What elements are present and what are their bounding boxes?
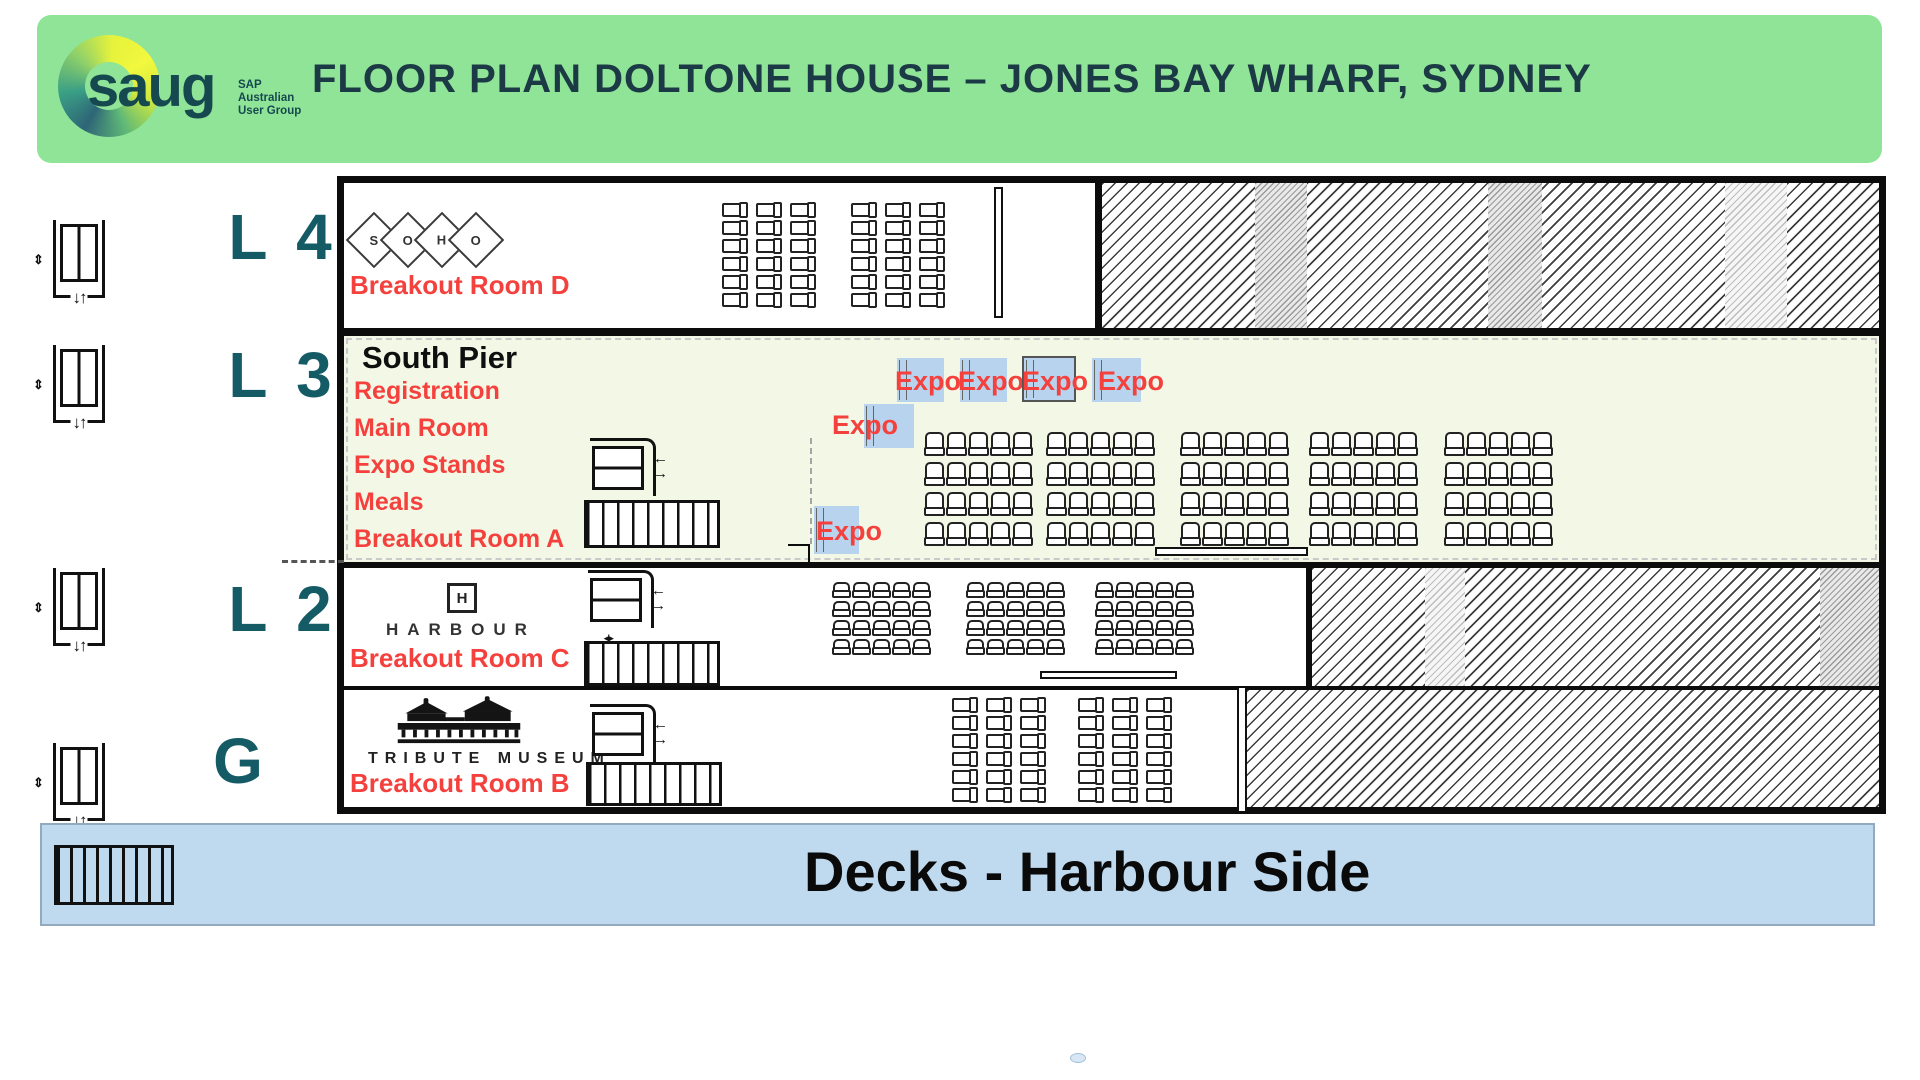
chair-icon: [790, 239, 816, 253]
chair-icon: [967, 639, 984, 655]
chair-icon: [1027, 601, 1044, 617]
chair-icon: [1047, 582, 1064, 598]
chair-icon: [1203, 462, 1222, 486]
chair-icon: [1078, 734, 1104, 748]
chair-icon: [722, 239, 748, 253]
chair-icon: [1156, 601, 1173, 617]
chair-icon: [1146, 752, 1172, 766]
lift-updown-arrows-icon: ↓↑: [71, 413, 88, 433]
chair-icon: [1176, 601, 1193, 617]
chair-icon: [987, 620, 1004, 636]
decks-label: Decks - Harbour Side: [804, 839, 1370, 904]
tribute-museum-logo-text: TRIBUTE MUSEUM: [368, 750, 611, 768]
l3-room-dashed-wall: [810, 438, 812, 544]
chair-icon: [722, 275, 748, 289]
l2-hatch-light-strip: [1425, 568, 1465, 686]
chair-icon: [756, 275, 782, 289]
chair-icon: [853, 582, 870, 598]
lift-side-arrow-icon: ⇕: [33, 377, 44, 393]
l3-seating-block: [1445, 432, 1552, 546]
chair-icon: [885, 239, 911, 253]
chair-icon: [756, 203, 782, 217]
chair-icon: [1136, 620, 1153, 636]
l3-external-dashed-line: [282, 560, 344, 563]
chair-icon: [987, 601, 1004, 617]
chair-icon: [790, 275, 816, 289]
stairs-icon-l2: [584, 641, 720, 686]
l3-seating-block: [1181, 432, 1288, 546]
expo-label: Expo: [816, 516, 882, 547]
level-label-l4: L 4: [228, 200, 338, 274]
lift-doors-icon: [592, 712, 644, 756]
expo-label: Expo: [1098, 366, 1164, 397]
chair-icon: [952, 752, 978, 766]
level-label-l3: L 3: [228, 338, 338, 412]
chair-icon: [1467, 522, 1486, 546]
arrow-right-icon: →: [653, 467, 668, 481]
chair-icon: [1146, 698, 1172, 712]
chair-icon: [919, 275, 945, 289]
chair-icon: [1445, 522, 1464, 546]
chair-icon: [885, 221, 911, 235]
expo-stand: Expo: [960, 358, 1007, 402]
chair-icon: [1176, 639, 1193, 655]
chair-icon: [1467, 462, 1486, 486]
lift-updown-arrows-icon: ↓↑: [71, 288, 88, 308]
chair-icon: [1354, 492, 1373, 516]
lift-side-arrow-icon: ⇕: [33, 600, 44, 616]
chair-icon: [1112, 752, 1138, 766]
chair-icon: [1156, 582, 1173, 598]
soho-logo: S O H O: [360, 220, 496, 260]
chair-icon: [967, 620, 984, 636]
chair-icon: [1007, 582, 1024, 598]
chair-icon: [913, 582, 930, 598]
chair-icon: [1445, 462, 1464, 486]
chair-icon: [1096, 582, 1113, 598]
chair-icon: [1113, 462, 1132, 486]
lift-doors-icon: [590, 578, 642, 622]
chair-icon: [1146, 716, 1172, 730]
breakout-room-c-label: Breakout Room C: [350, 643, 570, 674]
chair-icon: [790, 203, 816, 217]
chair-icon: [1013, 432, 1032, 456]
stairs-icon-l3: [584, 500, 720, 548]
function-expo-stands: Expo Stands: [354, 452, 564, 479]
chair-icon: [893, 601, 910, 617]
function-registration: Registration: [354, 378, 564, 405]
chair-icon: [1376, 432, 1395, 456]
stairs-icon-g: [586, 762, 722, 806]
expo-stand: Expo: [814, 506, 859, 554]
chair-icon: [1376, 462, 1395, 486]
chair-icon: [1047, 620, 1064, 636]
chair-icon: [722, 257, 748, 271]
chair-icon: [1078, 698, 1104, 712]
chair-icon: [952, 698, 978, 712]
g-seating-block: [952, 698, 1050, 802]
function-meals: Meals: [354, 489, 564, 516]
chair-icon: [756, 221, 782, 235]
chair-icon: [1376, 492, 1395, 516]
saug-logo-text: saug: [87, 53, 214, 120]
chair-icon: [893, 620, 910, 636]
g-seating-block: [1078, 698, 1176, 802]
lift-doors-icon: [60, 747, 98, 805]
l4-screen: [994, 187, 1003, 318]
chair-icon: [1445, 492, 1464, 516]
chair-icon: [1467, 432, 1486, 456]
chair-icon: [1096, 620, 1113, 636]
chair-icon: [969, 432, 988, 456]
saug-sub-line3: User Group: [238, 105, 301, 118]
elevator-icon-g-plan: ← → ◂|▸: [588, 706, 660, 768]
chair-icon: [1078, 788, 1104, 802]
chair-icon: [756, 257, 782, 271]
chair-icon: [967, 601, 984, 617]
chair-icon: [1269, 432, 1288, 456]
chair-icon: [1078, 716, 1104, 730]
chair-icon: [1047, 492, 1066, 516]
soho-diamond-icon: O: [448, 212, 505, 269]
chair-icon: [1020, 752, 1046, 766]
chair-icon: [1332, 432, 1351, 456]
chair-icon: [986, 716, 1012, 730]
chair-icon: [1116, 620, 1133, 636]
expo-stand: Expo: [1022, 356, 1076, 402]
chair-icon: [873, 582, 890, 598]
chair-icon: [1181, 462, 1200, 486]
elevator-icon-l2-plan: ← → ◂|▸: [586, 572, 658, 634]
chair-icon: [919, 239, 945, 253]
chair-icon: [1112, 788, 1138, 802]
chair-icon: [1069, 432, 1088, 456]
chair-icon: [1112, 734, 1138, 748]
l4-room-wall: [1095, 183, 1102, 328]
chair-icon: [1091, 432, 1110, 456]
chair-icon: [986, 698, 1012, 712]
l2-seating-block: [1096, 582, 1193, 655]
chair-icon: [790, 293, 816, 307]
chair-icon: [722, 203, 748, 217]
decks-band: Decks - Harbour Side: [40, 823, 1875, 926]
chair-icon: [1467, 492, 1486, 516]
chair-icon: [1511, 432, 1530, 456]
expo-label: Expo: [832, 410, 898, 441]
chair-icon: [1112, 770, 1138, 784]
chair-icon: [1225, 432, 1244, 456]
chair-icon: [1269, 492, 1288, 516]
lift-doors-icon: [60, 349, 98, 407]
elevator-icon-l3-plan: ← → ◂|▸: [588, 440, 660, 502]
chair-icon: [947, 462, 966, 486]
chair-icon: [833, 620, 850, 636]
chair-icon: [851, 221, 877, 235]
arrow-left-icon: ←: [651, 584, 666, 598]
chair-icon: [1113, 522, 1132, 546]
chair-icon: [1047, 432, 1066, 456]
chair-icon: [913, 639, 930, 655]
chair-icon: [722, 221, 748, 235]
chair-icon: [1020, 788, 1046, 802]
chair-icon: [1354, 432, 1373, 456]
arrow-left-icon: ←: [653, 452, 668, 466]
chair-icon: [1533, 432, 1552, 456]
chair-icon: [969, 522, 988, 546]
chair-icon: [1135, 432, 1154, 456]
chair-icon: [885, 203, 911, 217]
breakout-room-b-label: Breakout Room B: [350, 768, 570, 799]
chair-icon: [893, 639, 910, 655]
chair-icon: [986, 752, 1012, 766]
chair-icon: [1047, 522, 1066, 546]
chair-icon: [1007, 620, 1024, 636]
chair-icon: [1135, 492, 1154, 516]
l4-seating-block: [851, 203, 949, 307]
decks-stairs-icon: [54, 845, 174, 905]
chair-icon: [1511, 492, 1530, 516]
chair-icon: [1078, 770, 1104, 784]
chair-icon: [851, 239, 877, 253]
elevator-icon-l4: ⇕ ↓↑: [45, 220, 113, 308]
chair-icon: [1013, 462, 1032, 486]
chair-icon: [1310, 492, 1329, 516]
chair-icon: [952, 716, 978, 730]
chair-icon: [1533, 522, 1552, 546]
chair-icon: [1398, 432, 1417, 456]
chair-icon: [1047, 639, 1064, 655]
chair-icon: [1181, 432, 1200, 456]
chair-icon: [919, 203, 945, 217]
chair-icon: [893, 582, 910, 598]
soho-letter: O: [403, 233, 413, 248]
l3-seating-block: [1310, 432, 1417, 546]
l3-stage: [1155, 547, 1308, 556]
chair-icon: [986, 788, 1012, 802]
chair-icon: [967, 582, 984, 598]
chair-icon: [1113, 492, 1132, 516]
chair-icon: [1310, 432, 1329, 456]
lift-doors-icon: [60, 224, 98, 282]
harbour-logo-text: HARBOUR: [386, 620, 536, 640]
lift-updown-arrows-icon: ↓↑: [71, 636, 88, 656]
chair-icon: [1533, 492, 1552, 516]
chair-icon: [833, 601, 850, 617]
chair-icon: [986, 734, 1012, 748]
chair-icon: [790, 257, 816, 271]
chair-icon: [1181, 522, 1200, 546]
chair-icon: [1091, 522, 1110, 546]
chair-icon: [925, 462, 944, 486]
chair-icon: [913, 601, 930, 617]
chair-icon: [947, 432, 966, 456]
arrow-right-icon: →: [653, 733, 668, 747]
chair-icon: [1096, 601, 1113, 617]
breakout-room-d-label: Breakout Room D: [350, 270, 570, 301]
chair-icon: [873, 639, 890, 655]
chair-icon: [873, 620, 890, 636]
g-wall-channel: [1237, 688, 1247, 811]
l3-wall-corner: [788, 544, 810, 546]
elevator-icon-l2: ⇕ ↓↑: [45, 568, 113, 656]
l4-hatch-gray-strip: [1255, 183, 1307, 328]
chair-icon: [1354, 522, 1373, 546]
page-title: FLOOR PLAN DOLTONE HOUSE – JONES BAY WHA…: [312, 57, 1592, 102]
lift-doors-icon: [592, 446, 644, 490]
expo-stand: Expo: [1092, 358, 1141, 402]
l3-wall-corner: [808, 544, 810, 562]
chair-icon: [919, 257, 945, 271]
chair-icon: [1156, 639, 1173, 655]
soho-letter: S: [370, 232, 379, 247]
chair-icon: [885, 257, 911, 271]
chair-icon: [1203, 522, 1222, 546]
elevator-icon-l3: ⇕ ↓↑: [45, 345, 113, 433]
saug-logo-subtext: SAP Australian User Group: [238, 79, 301, 118]
chair-icon: [947, 522, 966, 546]
chair-icon: [1489, 522, 1508, 546]
function-breakout-room-a: Breakout Room A: [354, 526, 564, 553]
chair-icon: [1533, 462, 1552, 486]
chair-icon: [885, 293, 911, 307]
lift-doors-icon: [60, 572, 98, 630]
chair-icon: [853, 620, 870, 636]
chair-icon: [851, 257, 877, 271]
chair-icon: [1489, 462, 1508, 486]
chair-icon: [1116, 639, 1133, 655]
chair-icon: [1116, 582, 1133, 598]
chair-icon: [952, 734, 978, 748]
chair-icon: [1225, 492, 1244, 516]
chair-icon: [952, 788, 978, 802]
soho-letter: H: [437, 232, 446, 247]
chair-icon: [1176, 620, 1193, 636]
chair-icon: [1069, 462, 1088, 486]
chair-icon: [1376, 522, 1395, 546]
header-banner: saug SAP Australian User Group FLOOR PLA…: [37, 15, 1882, 163]
expo-label: Expo: [895, 366, 961, 397]
chair-icon: [1269, 522, 1288, 546]
chair-icon: [1112, 716, 1138, 730]
harbour-logo-icon: H: [447, 583, 477, 613]
l4-hatch-light-strip: [1725, 183, 1787, 328]
chair-icon: [1310, 462, 1329, 486]
chair-icon: [756, 239, 782, 253]
arrow-right-icon: →: [651, 599, 666, 613]
chair-icon: [1136, 639, 1153, 655]
chair-icon: [833, 582, 850, 598]
chair-icon: [1091, 462, 1110, 486]
chair-icon: [1047, 462, 1066, 486]
chair-icon: [1146, 770, 1172, 784]
chair-icon: [925, 522, 944, 546]
chair-icon: [1091, 492, 1110, 516]
chair-icon: [1013, 492, 1032, 516]
chair-icon: [851, 275, 877, 289]
l4-seating-block: [722, 203, 820, 307]
chair-icon: [1247, 462, 1266, 486]
saug-sub-line1: SAP: [238, 79, 301, 92]
chair-icon: [1225, 462, 1244, 486]
chair-icon: [1310, 522, 1329, 546]
chair-icon: [925, 492, 944, 516]
chair-icon: [873, 601, 890, 617]
chair-icon: [885, 275, 911, 289]
chair-icon: [925, 432, 944, 456]
soho-letter: O: [471, 233, 481, 248]
chair-icon: [1069, 522, 1088, 546]
chair-icon: [853, 639, 870, 655]
chair-icon: [1007, 601, 1024, 617]
l2-seating-block: [967, 582, 1064, 655]
chair-icon: [991, 432, 1010, 456]
saug-sub-line2: Australian: [238, 92, 301, 105]
function-main-room: Main Room: [354, 415, 564, 442]
chair-icon: [952, 770, 978, 784]
chair-icon: [1156, 620, 1173, 636]
chair-icon: [1181, 492, 1200, 516]
level-label-l2: L 2: [228, 572, 338, 646]
chair-icon: [1027, 639, 1044, 655]
chair-icon: [1225, 522, 1244, 546]
chair-icon: [1135, 462, 1154, 486]
chair-icon: [969, 462, 988, 486]
chair-icon: [991, 492, 1010, 516]
chair-icon: [851, 293, 877, 307]
chair-icon: [1269, 462, 1288, 486]
chair-icon: [1027, 620, 1044, 636]
chair-icon: [1398, 492, 1417, 516]
lift-side-arrow-icon: ⇕: [33, 775, 44, 791]
chair-icon: [1176, 582, 1193, 598]
chair-icon: [790, 221, 816, 235]
page-artifact-dot: [1070, 1053, 1086, 1063]
l2-seating-block: [833, 582, 930, 655]
divider-l4-l3: [344, 328, 1879, 336]
level-label-g: G: [186, 724, 296, 798]
l2-stage: [1040, 671, 1177, 679]
chair-icon: [1007, 639, 1024, 655]
chair-icon: [1511, 522, 1530, 546]
south-pier-label: South Pier: [362, 340, 517, 376]
chair-icon: [853, 601, 870, 617]
expo-stand: Expo: [864, 404, 914, 448]
l3-seating-block: [925, 432, 1032, 546]
chair-icon: [1247, 432, 1266, 456]
chair-icon: [1398, 522, 1417, 546]
expo-label: Expo: [958, 366, 1024, 397]
l4-hatch-gray-strip: [1488, 183, 1542, 328]
chair-icon: [1203, 432, 1222, 456]
chair-icon: [1069, 492, 1088, 516]
arrow-left-icon: ←: [653, 718, 668, 732]
chair-icon: [919, 293, 945, 307]
chair-icon: [1135, 522, 1154, 546]
chair-icon: [1136, 601, 1153, 617]
chair-icon: [1398, 462, 1417, 486]
l3-function-list: Registration Main Room Expo Stands Meals…: [354, 378, 564, 563]
chair-icon: [991, 522, 1010, 546]
chair-icon: [1445, 432, 1464, 456]
expo-label: Expo: [1022, 366, 1088, 397]
chair-icon: [987, 582, 1004, 598]
chair-icon: [1146, 788, 1172, 802]
chair-icon: [991, 462, 1010, 486]
l2-hatch-gray-strip: [1820, 568, 1879, 686]
chair-icon: [1332, 492, 1351, 516]
chair-icon: [913, 620, 930, 636]
chair-icon: [1020, 698, 1046, 712]
